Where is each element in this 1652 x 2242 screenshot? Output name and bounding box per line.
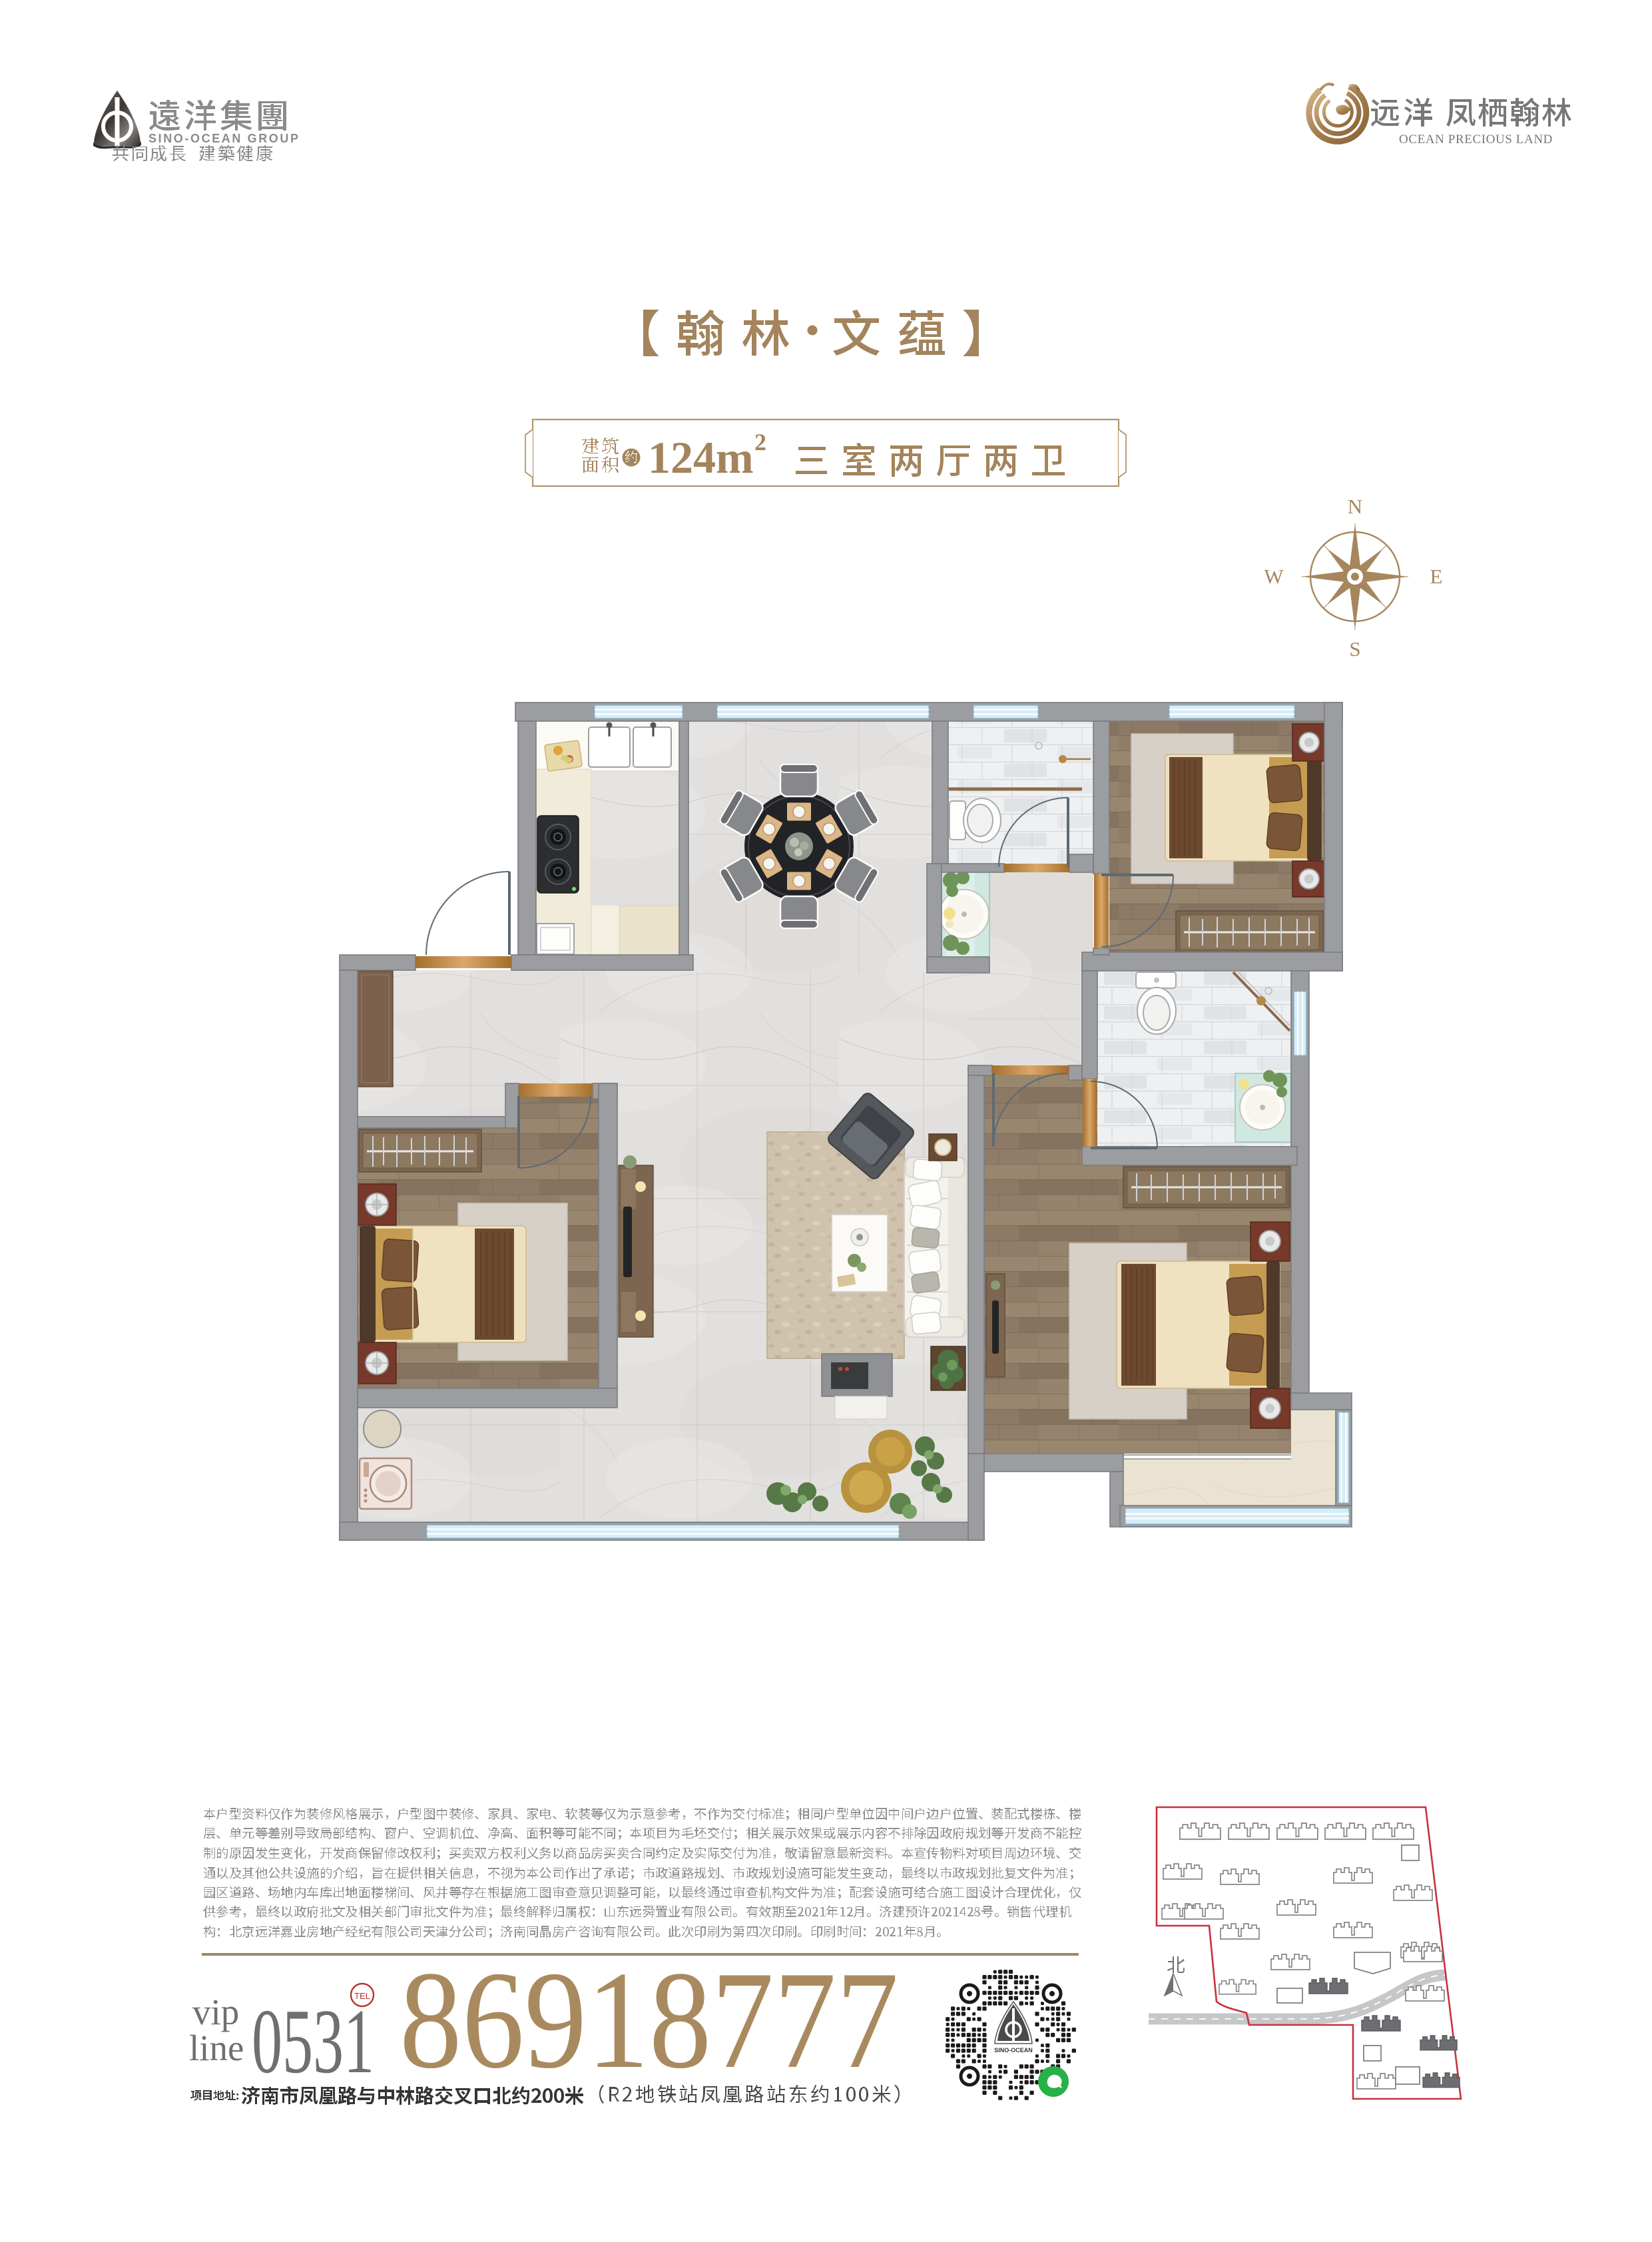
svg-text:vip: vip — [192, 1992, 239, 2032]
svg-text:86918777: 86918777 — [400, 1943, 899, 2098]
svg-text:SINO-OCEAN: SINO-OCEAN — [994, 2047, 1033, 2054]
svg-text:TEL: TEL — [354, 1991, 370, 2001]
svg-text:line: line — [189, 2028, 244, 2068]
svg-text:OCEAN PRECIOUS LAND: OCEAN PRECIOUS LAND — [1399, 133, 1553, 146]
svg-text:SINO-OCEAN GROUP: SINO-OCEAN GROUP — [148, 132, 300, 145]
svg-text:124m: 124m — [648, 432, 754, 483]
svg-text:2: 2 — [754, 429, 766, 455]
svg-text:S: S — [1349, 637, 1360, 661]
svg-text:E: E — [1430, 565, 1443, 588]
svg-text:W: W — [1264, 565, 1284, 588]
svg-text:N: N — [1348, 495, 1362, 518]
svg-text:0531: 0531 — [252, 1990, 374, 2092]
